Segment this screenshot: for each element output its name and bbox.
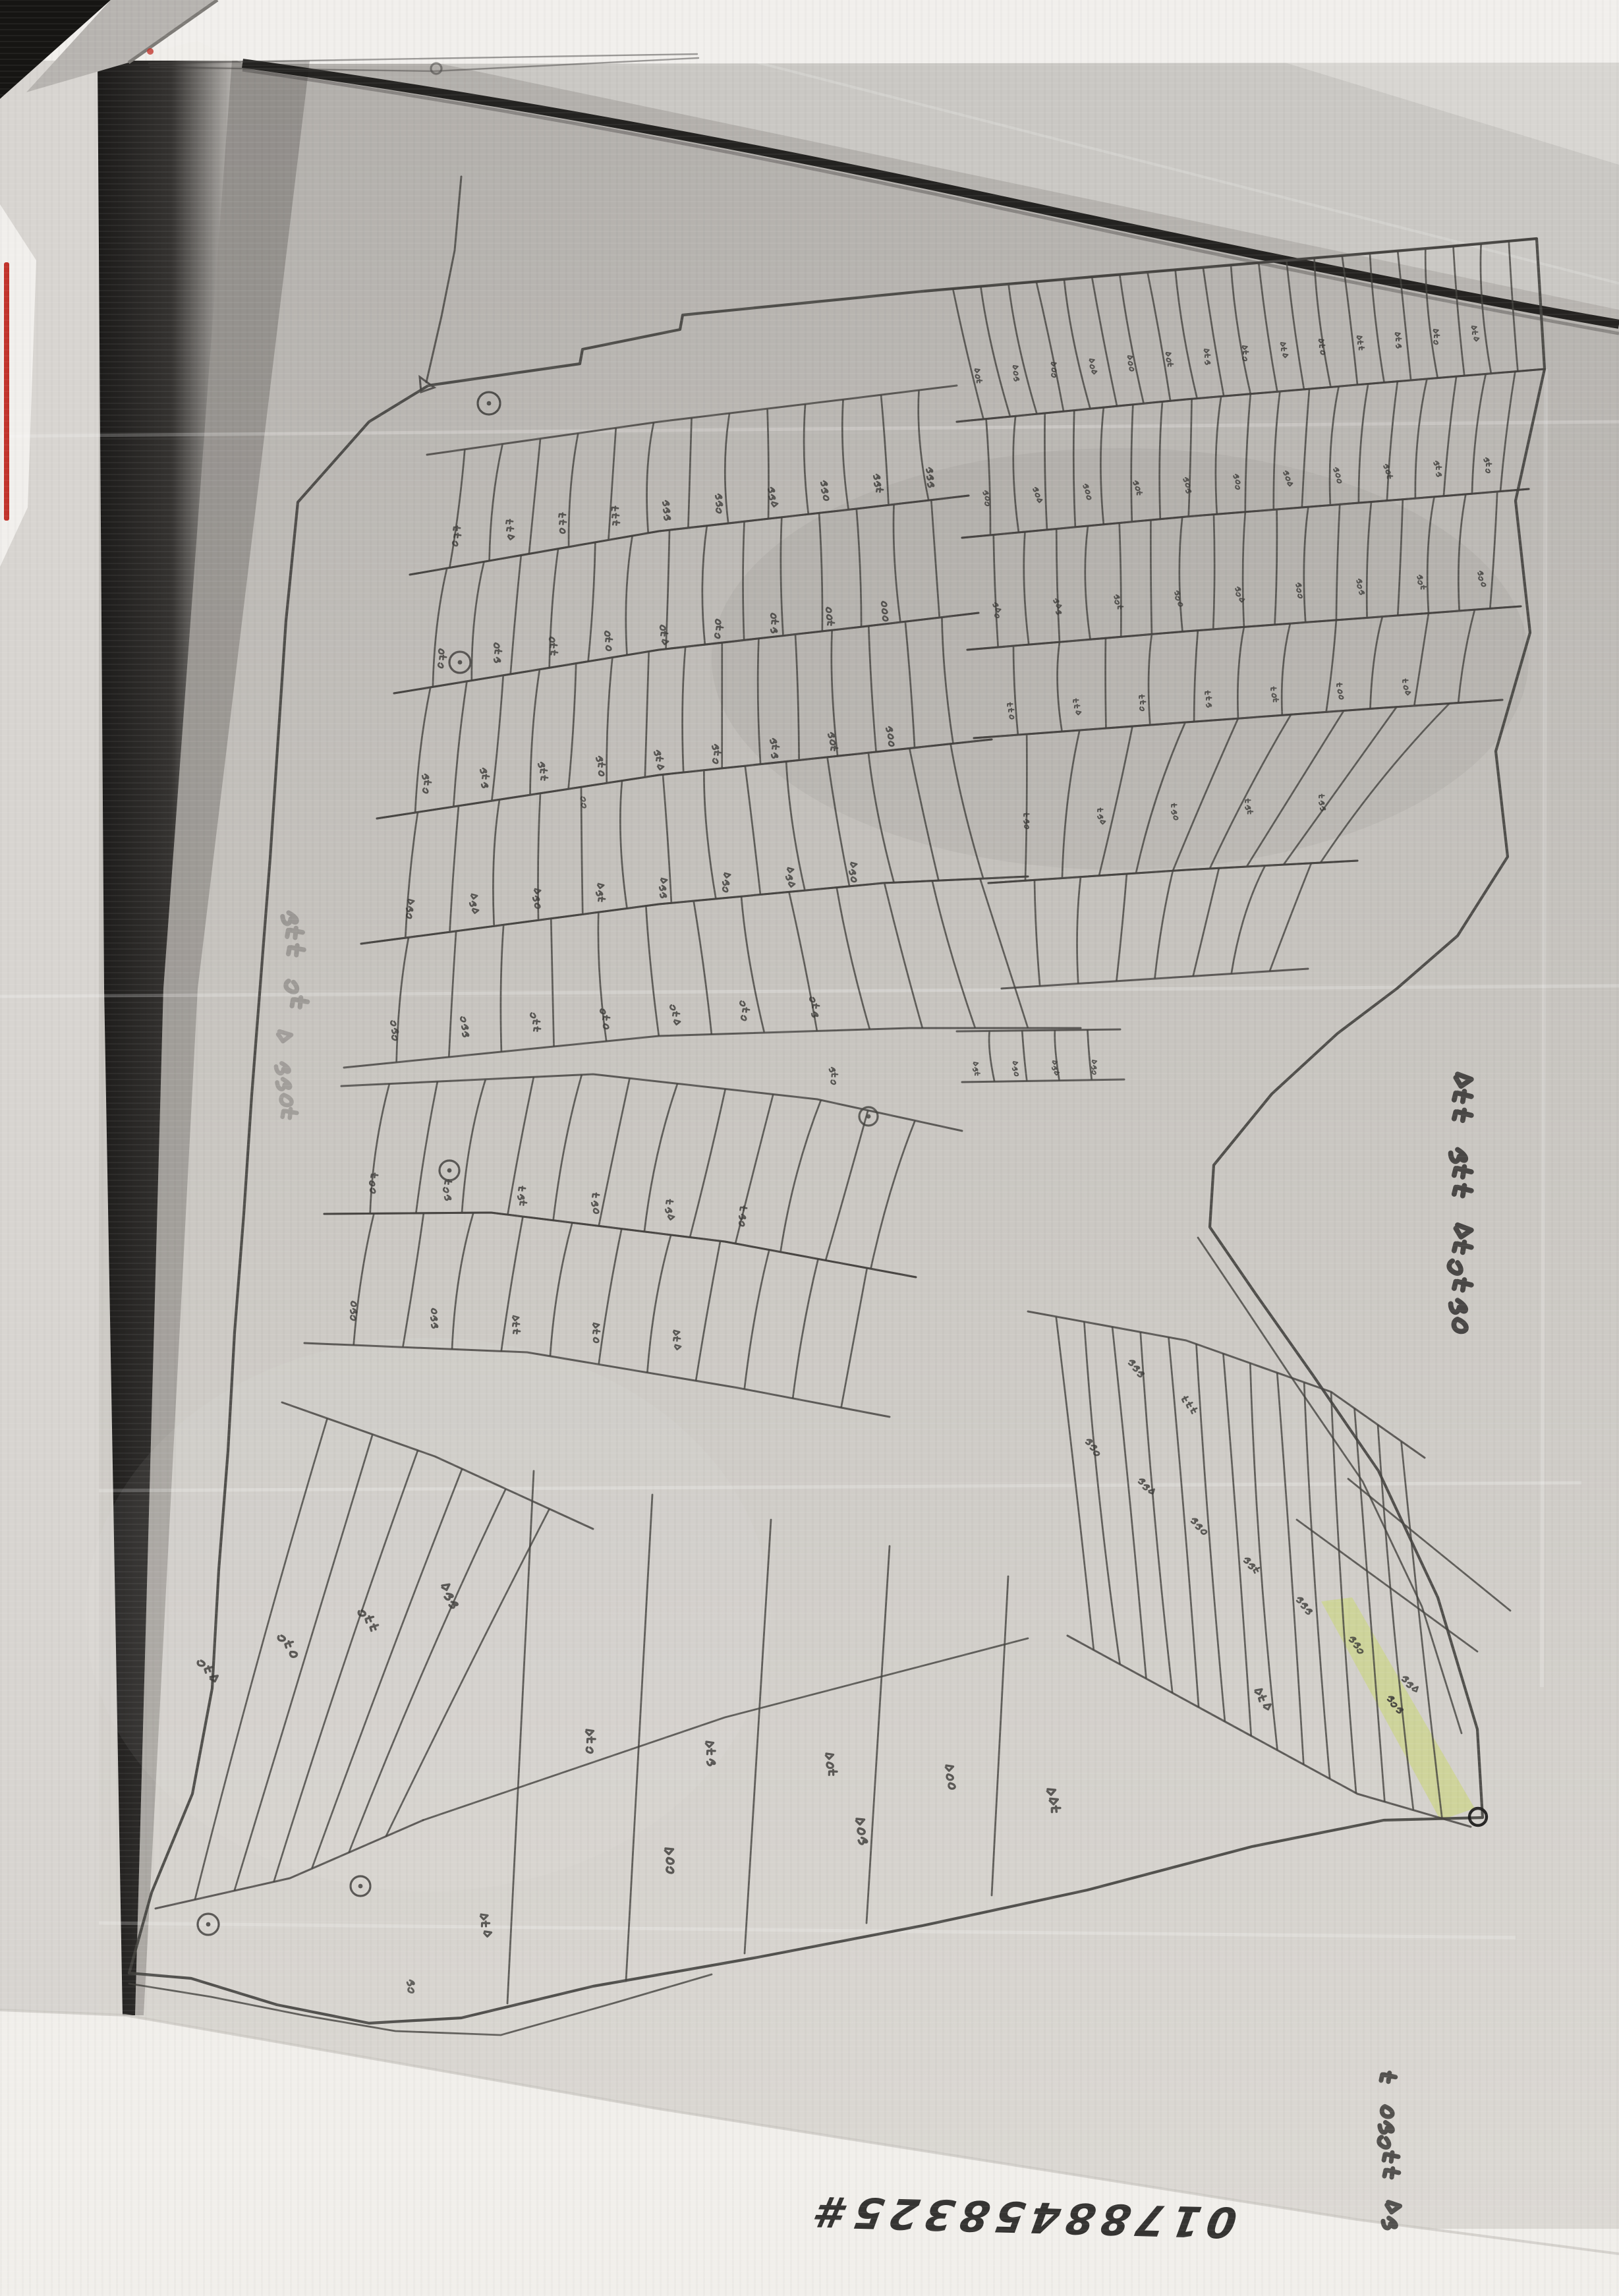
scanned-map-page: ৭৬৫৭৬৪৭৬৩৭৬২৭৬১৭৬০৭৫৯৭৫৮৭৫৭৭৫৬৭৫৫৭৫৪৭৫৩৭… — [0, 0, 1619, 2296]
scanner-and-paper-artifacts — [0, 0, 1619, 2296]
handwritten-phone-number-upside-down: 01788458325# — [737, 2148, 1318, 2248]
red-pen-edge-line — [4, 262, 9, 521]
map-scan-svg: ৭৬৫৭৬৪৭৬৩৭৬২৭৬১৭৬০৭৫৯৭৫৮৭৫৭৭৫৬৭৫৫৭৫৪৭৫৩৭… — [0, 0, 1619, 2296]
red-speck — [147, 48, 154, 55]
